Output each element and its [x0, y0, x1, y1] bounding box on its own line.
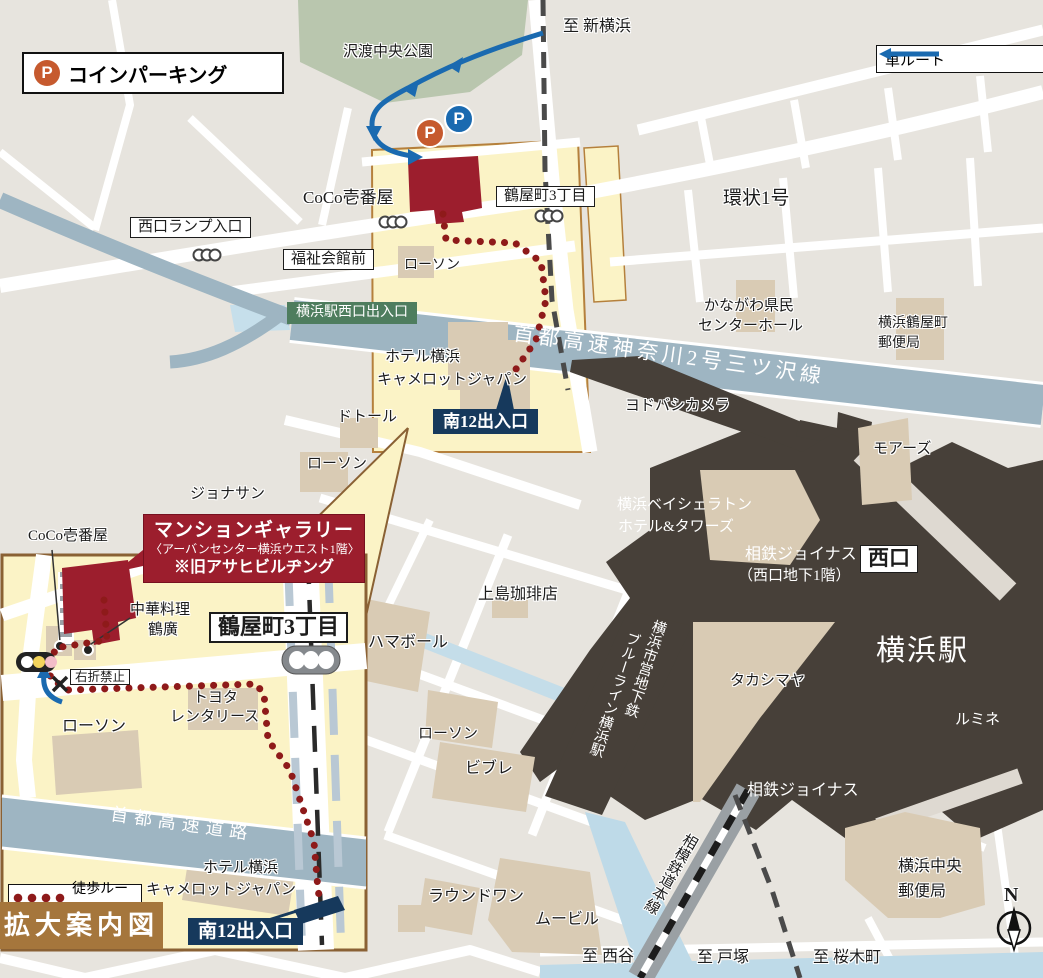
moores-label: モアーズ	[873, 441, 931, 458]
lawson-mid-label: ローソン	[307, 456, 367, 473]
tsuruyacho-3chome-sign: 鶴屋町3丁目	[496, 186, 595, 207]
vivre-label: ビブレ	[465, 760, 513, 778]
lawson-south-label: ローソン	[418, 726, 478, 743]
kanjo-1go-label: 環状1号	[723, 188, 790, 209]
toyota-label-1: トヨタ	[193, 690, 238, 707]
gallery-note: ※旧アサヒビルヂング	[150, 559, 358, 577]
sotetsu-joinus-south-label: 相鉄ジョイナス	[747, 782, 859, 800]
nishiguchi-ramp-sign: 西口ランプ入口	[130, 217, 251, 238]
inset-coco-ichibanya-label: CoCo壱番屋	[28, 528, 108, 545]
car-route-arrow-icon	[877, 46, 943, 62]
inset-traffic-light-large	[282, 646, 340, 674]
parking-blue-icon: P	[444, 104, 474, 134]
round-one-label: ラウンドワン	[428, 888, 524, 906]
west-exit-entrance-sign: 横浜駅西口出入口	[287, 302, 417, 324]
inset-traffic-light-small	[16, 652, 57, 672]
tsuruyacho-post-label-1: 横浜鶴屋町	[878, 316, 948, 332]
minami12-sign-main: 南12出入口	[433, 409, 538, 434]
sawatari-park-label: 沢渡中央公園	[343, 44, 433, 61]
sotetsu-joinus-label-2: （西口地下1階）	[738, 568, 851, 585]
lumine-label: ルミネ	[955, 712, 1000, 729]
fukushi-kaikan-sign: 福祉会館前	[283, 249, 374, 270]
inset-title: 拡大案内図	[0, 902, 163, 949]
inset-hotel-label-1: ホテル横浜	[203, 860, 278, 877]
inset-lawson-label: ローソン	[62, 718, 126, 736]
parking-icon: P	[34, 60, 60, 86]
hotel-camelot-label-2: キャメロットジャパン	[377, 372, 527, 389]
chuka-label-1: 中華料理	[130, 602, 190, 619]
yodobashi-label: ヨドバシカメラ	[625, 398, 730, 415]
yokohama-station-label: 横浜駅	[876, 635, 969, 667]
gallery-subtitle: 〈アーバンセンター横浜ウエスト1階〉	[150, 543, 358, 556]
west-exit-sign: 西口	[860, 545, 918, 573]
tsuruyacho-post-label-2: 郵便局	[878, 336, 920, 352]
hotel-camelot-label-1: ホテル横浜	[385, 349, 460, 366]
inset-tsuruyacho-sign: 鶴屋町3丁目	[209, 612, 348, 643]
toyota-label-2: レンタリース	[170, 709, 259, 726]
sheraton-label-2: ホテル&タワーズ	[618, 519, 734, 536]
inset-hotel-label-2: キャメロットジャパン	[146, 882, 296, 899]
hama-bowl-label: ハマボール	[368, 634, 448, 652]
movil-label: ムービル	[535, 911, 599, 929]
gallery-title: マンションギャラリー	[150, 520, 358, 541]
chuka-label-2: 鶴廣	[148, 622, 178, 639]
dest-shin-yokohama: 至 新横浜	[563, 18, 631, 36]
coin-parking-legend: P コインパーキング	[22, 52, 284, 94]
gallery-sign: マンションギャラリー 〈アーバンセンター横浜ウエスト1階〉 ※旧アサヒビルヂング	[143, 514, 365, 583]
no-right-turn-label: 右折禁止	[70, 669, 130, 685]
kenmin-hall-label-1: かながわ県民	[704, 298, 794, 315]
parking-orange-icon: P	[415, 118, 445, 148]
coco-ichibanya-label: CoCo壱番屋	[303, 188, 394, 207]
sotetsu-joinus-label-1: 相鉄ジョイナス	[745, 546, 857, 564]
chuo-post-label-1: 横浜中央	[898, 858, 962, 876]
car-route-legend: 車ルート	[876, 45, 1043, 73]
kenmin-hall-label-2: センターホール	[698, 318, 803, 335]
lawson-north-label: ローソン	[404, 258, 460, 274]
inset-minami12-sign: 南12出入口	[188, 918, 303, 945]
doutor-label: ドトール	[337, 409, 397, 426]
sheraton-label-1: 横浜ベイシェラトン	[617, 497, 752, 514]
dest-sakuragicho: 至 桜木町	[813, 949, 881, 967]
chuo-post-label-2: 郵便局	[898, 883, 946, 901]
coin-parking-label: コインパーキング	[68, 59, 227, 88]
dest-nishiya: 至 西谷	[582, 948, 634, 966]
compass-n-label: N	[1004, 884, 1018, 906]
ueshima-coffee-label: 上島珈琲店	[478, 586, 558, 604]
takashimaya-label: タカシマヤ	[730, 673, 805, 690]
dest-totsuka: 至 戸塚	[697, 949, 749, 967]
jonathan-label: ジョナサン	[190, 486, 265, 503]
access-map: P コインパーキング 車ルート 徒歩ルート 拡大案内図 P P 至 新横浜 沢渡…	[0, 0, 1043, 978]
map-canvas	[0, 0, 1043, 978]
